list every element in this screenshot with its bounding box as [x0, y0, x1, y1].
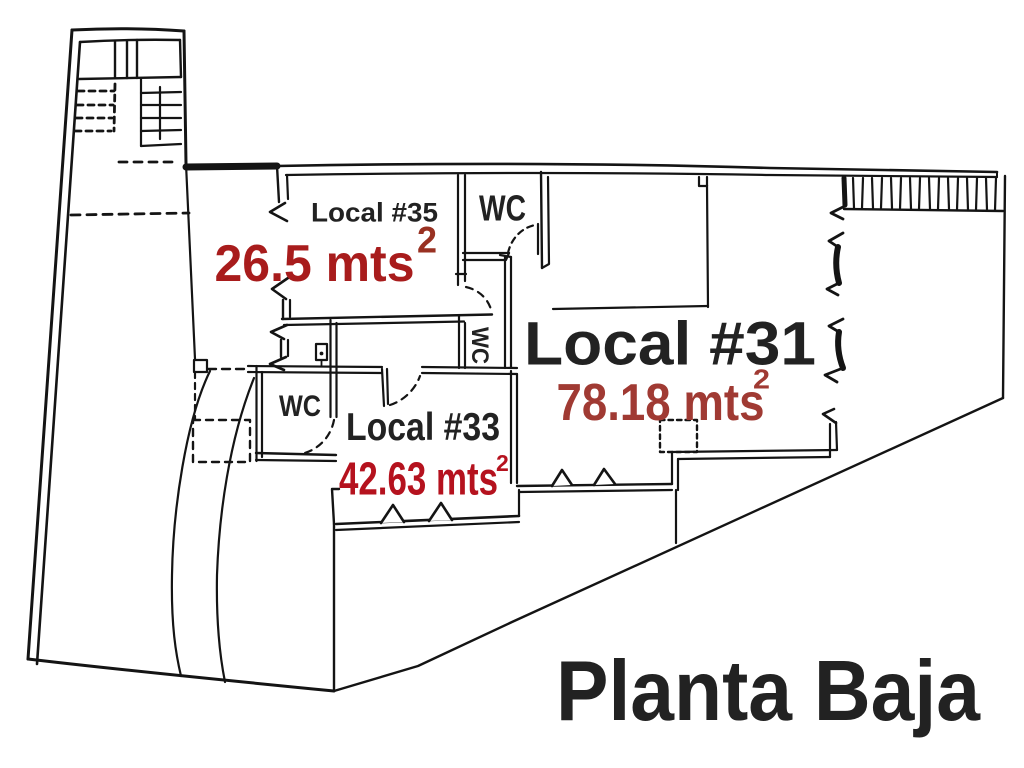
- svg-text:WC: WC: [279, 390, 321, 423]
- svg-text:Planta Baja: Planta Baja: [556, 644, 981, 739]
- svg-text:Local #31: Local #31: [524, 310, 816, 378]
- svg-text:42.63 mts: 42.63 mts: [339, 453, 498, 505]
- svg-text:Local #33: Local #33: [346, 406, 500, 449]
- svg-text:2: 2: [417, 220, 437, 261]
- svg-text:78.18 mts: 78.18 mts: [557, 374, 765, 432]
- svg-text:WC: WC: [466, 327, 493, 364]
- svg-text:2: 2: [496, 450, 509, 476]
- svg-text:26.5 mts: 26.5 mts: [215, 235, 415, 293]
- svg-text:2: 2: [753, 364, 770, 395]
- svg-text:WC: WC: [479, 188, 526, 229]
